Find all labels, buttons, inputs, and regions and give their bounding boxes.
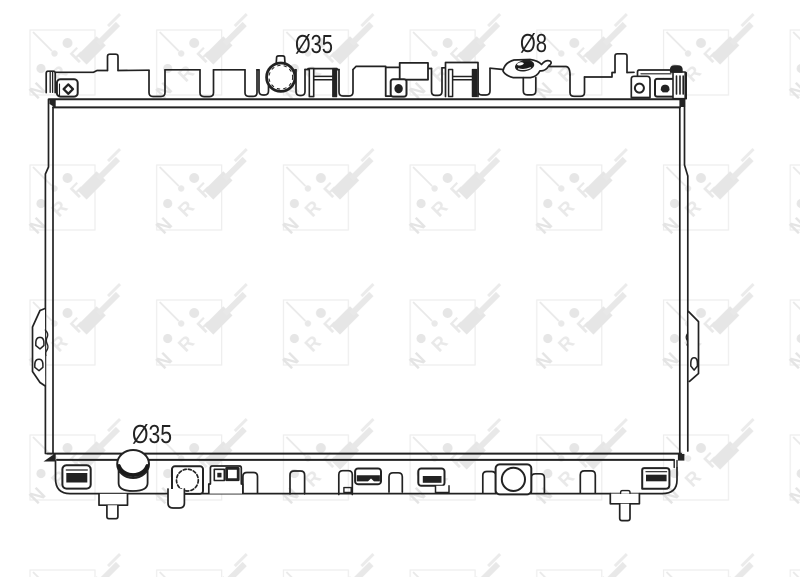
svg-text:Ø35: Ø35	[132, 419, 172, 449]
svg-text:Ø8: Ø8	[520, 28, 547, 58]
svg-text:Ø35: Ø35	[295, 29, 333, 59]
